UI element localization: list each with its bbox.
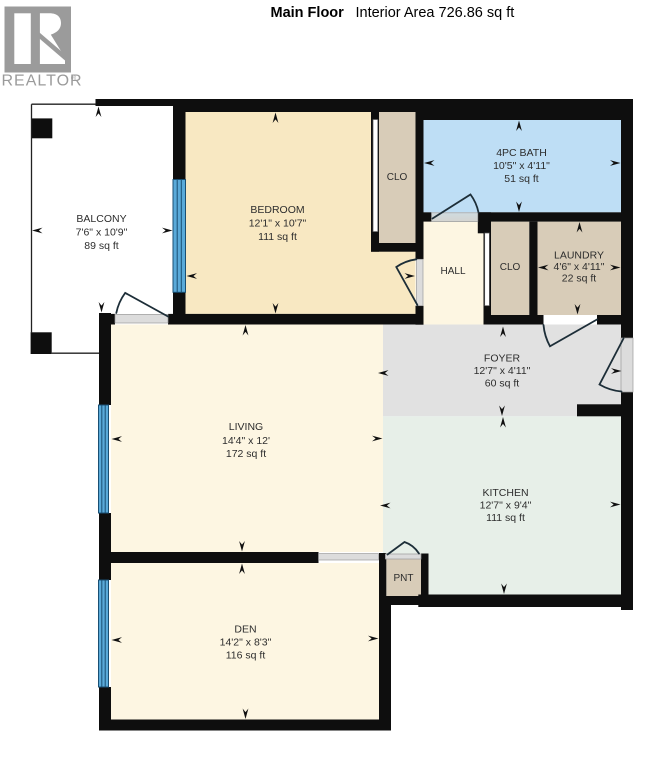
svg-text:PNT: PNT — [394, 573, 414, 584]
svg-text:LIVING: LIVING — [229, 421, 263, 433]
svg-text:60 sq ft: 60 sq ft — [485, 378, 520, 390]
svg-text:BEDROOM: BEDROOM — [250, 204, 304, 216]
svg-text:89 sq ft: 89 sq ft — [84, 240, 119, 252]
svg-text:12'7" x 4'11": 12'7" x 4'11" — [474, 365, 531, 377]
svg-text:Interior Area 726.86 sq ft: Interior Area 726.86 sq ft — [356, 5, 515, 21]
svg-text:116 sq ft: 116 sq ft — [226, 650, 266, 662]
svg-text:172 sq ft: 172 sq ft — [226, 448, 266, 460]
svg-text:®: ® — [71, 75, 77, 83]
svg-text:14'4" x 12': 14'4" x 12' — [222, 435, 270, 447]
svg-text:FOYER: FOYER — [484, 353, 521, 365]
svg-text:12'7" x 9'4": 12'7" x 9'4" — [480, 500, 532, 512]
svg-text:LAUNDRY: LAUNDRY — [554, 250, 604, 262]
svg-text:14'2" x 8'3": 14'2" x 8'3" — [220, 637, 272, 649]
svg-text:4PC BATH: 4PC BATH — [496, 147, 547, 159]
svg-text:BALCONY: BALCONY — [76, 213, 126, 225]
svg-text:DEN: DEN — [234, 624, 256, 636]
svg-text:KITCHEN: KITCHEN — [482, 487, 528, 499]
svg-text:12'1" x 10'7": 12'1" x 10'7" — [249, 218, 307, 230]
svg-text:10'5" x 4'11": 10'5" x 4'11" — [493, 160, 550, 172]
svg-text:111 sq ft: 111 sq ft — [486, 512, 525, 524]
svg-text:Main Floor: Main Floor — [271, 5, 345, 21]
svg-text:4'6" x 4'11": 4'6" x 4'11" — [554, 261, 605, 273]
svg-text:22 sq ft: 22 sq ft — [562, 273, 597, 285]
svg-text:111 sq ft: 111 sq ft — [258, 231, 297, 243]
svg-text:7'6" x 10'9": 7'6" x 10'9" — [76, 227, 128, 239]
svg-text:51 sq ft: 51 sq ft — [504, 173, 539, 185]
svg-text:CLO: CLO — [500, 262, 521, 273]
svg-text:CLO: CLO — [387, 172, 408, 183]
svg-text:HALL: HALL — [440, 266, 465, 277]
